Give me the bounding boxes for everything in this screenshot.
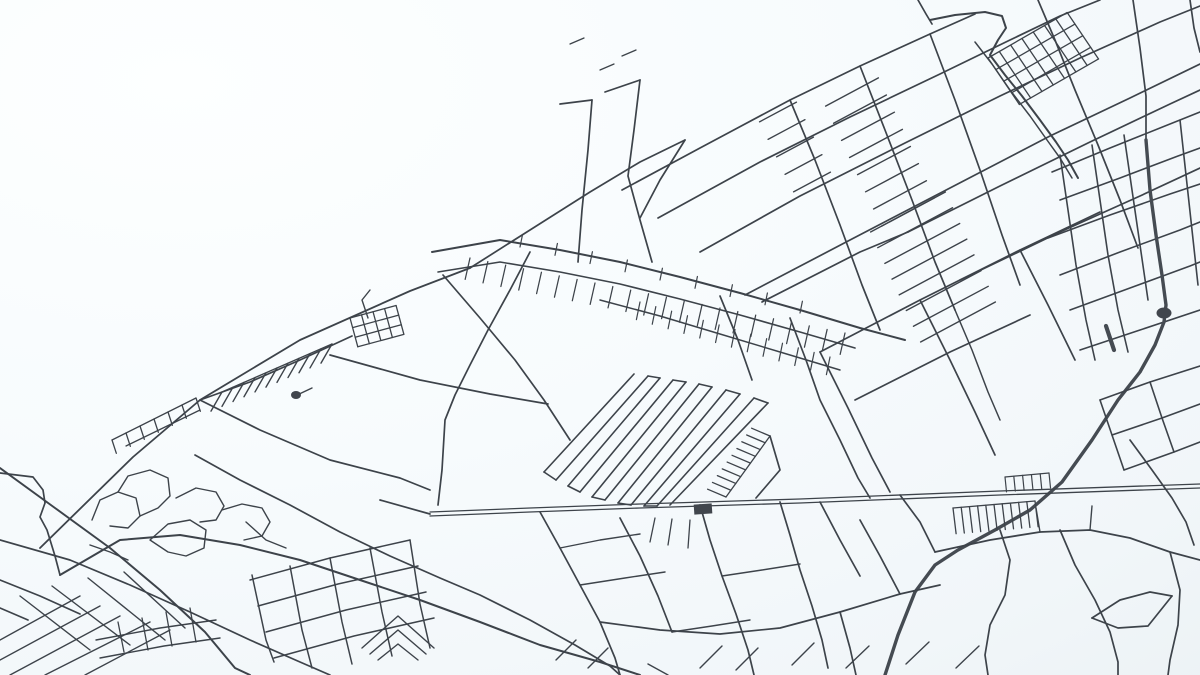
road bbox=[628, 80, 652, 262]
road bbox=[570, 38, 584, 44]
road bbox=[672, 620, 750, 632]
road bbox=[906, 642, 929, 664]
road bbox=[0, 608, 28, 620]
comb-tooth bbox=[697, 304, 702, 325]
road bbox=[430, 488, 1200, 516]
road bbox=[380, 500, 430, 514]
serpentine-street bbox=[592, 382, 686, 497]
grid-street bbox=[358, 334, 404, 346]
comb-tooth bbox=[625, 260, 627, 272]
comb-tooth bbox=[712, 482, 730, 490]
road bbox=[1106, 326, 1114, 350]
road bbox=[560, 534, 640, 548]
comb-tooth bbox=[112, 440, 116, 453]
road bbox=[960, 168, 1200, 280]
road bbox=[935, 530, 1200, 560]
road bbox=[790, 318, 870, 498]
comb-tooth bbox=[906, 271, 981, 311]
grid-street bbox=[353, 315, 399, 327]
road bbox=[378, 644, 418, 660]
road bbox=[100, 638, 220, 658]
road bbox=[605, 80, 640, 92]
comb-tooth bbox=[878, 208, 953, 248]
comb-tooth bbox=[660, 268, 662, 280]
comb-tooth bbox=[168, 412, 172, 425]
road bbox=[0, 468, 250, 675]
comb-tooth bbox=[871, 192, 946, 232]
road bbox=[1052, 112, 1200, 172]
comb-tooth bbox=[1010, 503, 1013, 529]
comb-tooth bbox=[760, 102, 797, 122]
comb-tooth bbox=[787, 322, 792, 343]
comb-tooth bbox=[732, 455, 750, 463]
grid-street bbox=[362, 315, 370, 344]
road bbox=[622, 50, 636, 56]
serpentine-street bbox=[544, 374, 634, 472]
road bbox=[722, 564, 800, 576]
road bbox=[1070, 262, 1200, 310]
road bbox=[0, 473, 60, 575]
road bbox=[1080, 310, 1200, 350]
road bbox=[195, 455, 620, 675]
comb-tooth bbox=[752, 428, 770, 436]
road bbox=[588, 648, 608, 668]
road bbox=[443, 275, 570, 440]
road bbox=[1092, 592, 1172, 618]
comb-tooth bbox=[986, 505, 989, 531]
grid-street bbox=[350, 318, 358, 347]
comb-tooth bbox=[727, 462, 745, 470]
comb-tooth bbox=[590, 283, 595, 304]
road bbox=[166, 612, 172, 646]
road bbox=[470, 140, 685, 268]
comb-tooth bbox=[794, 172, 831, 192]
road bbox=[0, 580, 80, 614]
road bbox=[855, 315, 1030, 400]
road bbox=[124, 572, 185, 628]
road bbox=[622, 14, 975, 190]
comb-tooth bbox=[1027, 502, 1030, 528]
map-viewport[interactable] bbox=[0, 0, 1200, 675]
comb-tooth bbox=[866, 164, 919, 192]
comb-tooth bbox=[953, 508, 956, 534]
road bbox=[955, 310, 1000, 420]
road bbox=[1020, 250, 1075, 360]
road bbox=[246, 522, 286, 548]
road-network-svg bbox=[0, 0, 1200, 675]
road bbox=[1112, 404, 1200, 435]
comb-tooth bbox=[969, 507, 972, 533]
road bbox=[330, 355, 548, 404]
road bbox=[560, 100, 592, 104]
road bbox=[820, 502, 860, 576]
serpentine-uturn bbox=[568, 486, 580, 492]
grid-street bbox=[385, 309, 393, 338]
serpentine-street bbox=[631, 390, 726, 505]
map-blob bbox=[291, 391, 301, 399]
road bbox=[650, 518, 655, 542]
road bbox=[118, 470, 170, 516]
road bbox=[438, 252, 530, 505]
road bbox=[1168, 552, 1180, 675]
comb-tooth bbox=[501, 265, 506, 286]
comb-tooth bbox=[537, 272, 542, 293]
road bbox=[1060, 155, 1095, 360]
comb-tooth bbox=[777, 137, 814, 157]
road bbox=[736, 648, 758, 670]
road bbox=[956, 646, 979, 668]
road bbox=[1180, 120, 1198, 285]
grid-street bbox=[355, 325, 401, 337]
road bbox=[885, 140, 1166, 675]
serpentine-uturn bbox=[726, 390, 740, 394]
road bbox=[756, 436, 780, 498]
comb-spine bbox=[726, 436, 770, 497]
road bbox=[600, 585, 940, 634]
comb-tooth bbox=[769, 319, 774, 340]
road bbox=[578, 100, 592, 262]
serpentine-uturn bbox=[699, 384, 712, 387]
comb-tooth bbox=[590, 252, 592, 264]
road bbox=[176, 488, 224, 522]
road bbox=[688, 520, 690, 548]
comb-tooth bbox=[1031, 475, 1033, 490]
serpentine-street bbox=[618, 387, 712, 503]
road bbox=[648, 664, 668, 675]
road bbox=[792, 643, 814, 665]
road bbox=[274, 618, 434, 658]
serpentine-uturn bbox=[592, 497, 605, 500]
comb-tooth bbox=[140, 426, 144, 439]
comb-tooth bbox=[913, 286, 988, 326]
serpentine-uturn bbox=[648, 376, 660, 378]
road bbox=[780, 502, 828, 668]
serpentine-uturn bbox=[754, 398, 768, 403]
road bbox=[720, 296, 752, 380]
comb-tooth bbox=[722, 469, 740, 477]
comb-tooth bbox=[978, 506, 981, 532]
road bbox=[88, 578, 165, 640]
road bbox=[700, 646, 722, 668]
road bbox=[860, 520, 900, 594]
road bbox=[1124, 135, 1148, 300]
comb-tooth bbox=[572, 279, 577, 300]
comb-tooth bbox=[608, 287, 613, 308]
road bbox=[1060, 222, 1200, 275]
landmark-blobs-layer bbox=[291, 308, 1172, 515]
comb-tooth bbox=[858, 146, 911, 174]
road bbox=[745, 64, 1200, 295]
comb-tooth bbox=[154, 419, 158, 432]
road bbox=[920, 300, 995, 455]
comb-tooth bbox=[737, 449, 755, 457]
road bbox=[1060, 530, 1118, 675]
comb-spine bbox=[1005, 473, 1049, 477]
comb-tooth bbox=[662, 297, 667, 318]
road bbox=[1090, 506, 1092, 530]
grid-street bbox=[396, 306, 404, 335]
serpentine-uturn bbox=[673, 380, 686, 382]
road bbox=[668, 519, 672, 545]
comb-tooth bbox=[708, 489, 726, 497]
map-blob bbox=[1157, 308, 1172, 319]
comb-tooth bbox=[554, 276, 559, 297]
comb-tooth bbox=[1014, 476, 1016, 491]
comb-tooth bbox=[747, 435, 765, 443]
map-blob bbox=[694, 503, 713, 514]
grid-street bbox=[373, 312, 381, 341]
road bbox=[1150, 382, 1174, 452]
road bbox=[0, 540, 330, 675]
comb-tooth bbox=[1049, 473, 1051, 488]
comb-tooth bbox=[1005, 477, 1007, 492]
serpentine-uturn bbox=[544, 472, 556, 480]
comb-tooth bbox=[679, 301, 684, 322]
road bbox=[92, 492, 140, 528]
comb-tooth bbox=[1040, 474, 1042, 489]
road bbox=[266, 592, 426, 632]
comb-tooth bbox=[717, 476, 735, 484]
roads-layer bbox=[0, 0, 1200, 675]
road bbox=[540, 512, 620, 675]
comb-tooth bbox=[961, 507, 964, 533]
road bbox=[900, 495, 935, 552]
comb-tooth bbox=[768, 120, 805, 140]
comb-tooth bbox=[1023, 475, 1025, 490]
comb-tooth bbox=[899, 255, 974, 295]
road bbox=[985, 530, 1010, 675]
comb-tooth bbox=[742, 442, 760, 450]
road bbox=[1092, 596, 1172, 628]
road bbox=[600, 64, 614, 70]
comb-tooth bbox=[804, 326, 809, 347]
serpentine-street bbox=[605, 384, 699, 500]
road bbox=[430, 484, 1200, 512]
road bbox=[700, 505, 754, 675]
comb-tooth bbox=[834, 95, 887, 123]
road bbox=[790, 100, 880, 330]
road bbox=[908, 90, 1200, 232]
comb-tooth bbox=[994, 505, 997, 531]
